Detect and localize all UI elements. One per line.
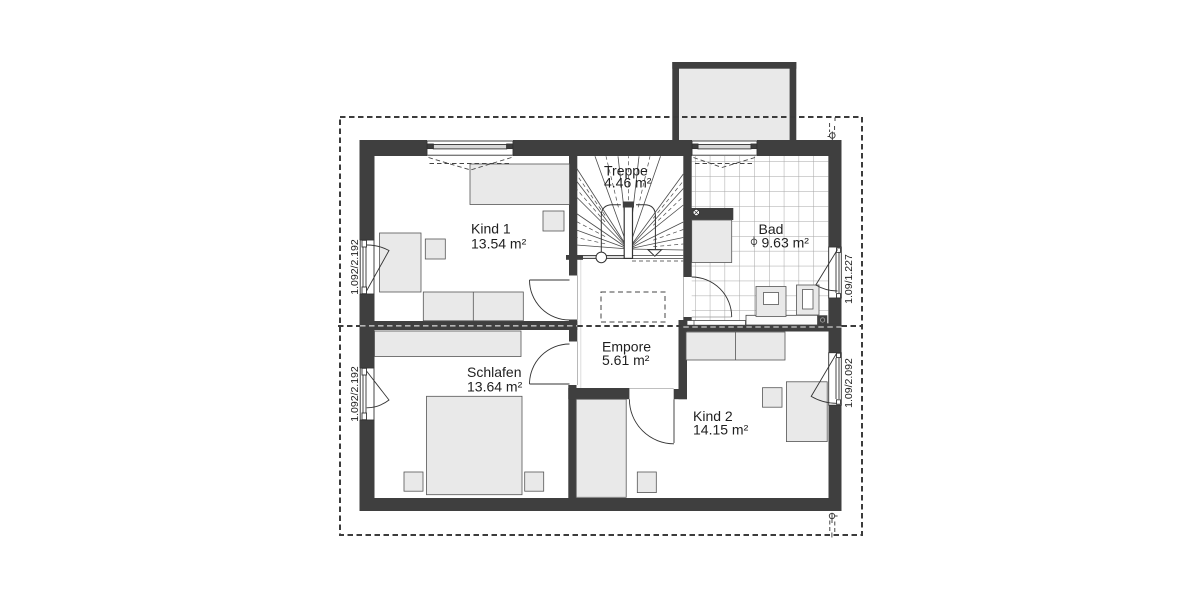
svg-text:9.63 m²: 9.63 m² bbox=[762, 235, 810, 251]
svg-text:1.09/1.227: 1.09/1.227 bbox=[843, 254, 855, 304]
svg-text:1.092/2.192: 1.092/2.192 bbox=[349, 239, 361, 295]
svg-text:Kind 1: Kind 1 bbox=[471, 221, 511, 237]
svg-text:13.64 m²: 13.64 m² bbox=[467, 379, 523, 395]
svg-text:4.46 m²: 4.46 m² bbox=[604, 175, 652, 191]
svg-text:13.54 m²: 13.54 m² bbox=[471, 236, 527, 252]
svg-text:14.15 m²: 14.15 m² bbox=[693, 422, 749, 438]
svg-text:1.09/2.092: 1.09/2.092 bbox=[843, 358, 855, 408]
svg-text:5.61 m²: 5.61 m² bbox=[602, 352, 650, 368]
svg-text:1.092/2.192: 1.092/2.192 bbox=[349, 366, 361, 422]
